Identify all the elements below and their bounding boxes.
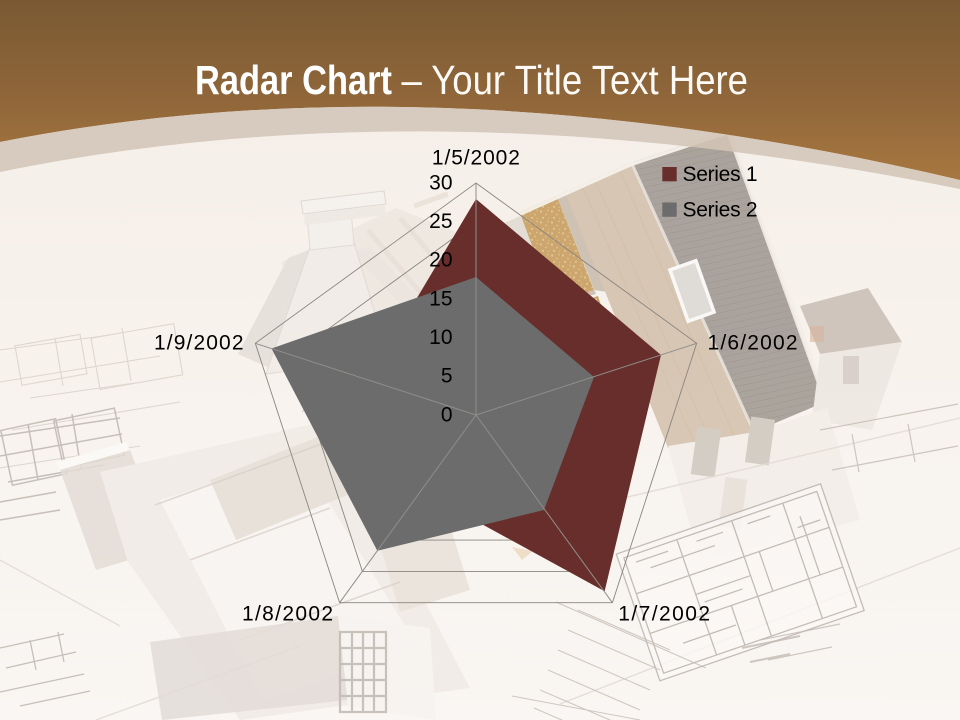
svg-text:1/6/2002: 1/6/2002 bbox=[708, 332, 798, 355]
svg-text:1/8/2002: 1/8/2002 bbox=[242, 603, 333, 626]
svg-text:Radar Chart– Your Title Text H: Radar Chart– Your Title Text Here bbox=[195, 57, 748, 103]
svg-text:25: 25 bbox=[429, 210, 452, 233]
svg-text:10: 10 bbox=[429, 326, 452, 349]
svg-text:5: 5 bbox=[441, 365, 453, 388]
svg-text:0: 0 bbox=[441, 403, 453, 426]
svg-text:Series 1: Series 1 bbox=[683, 163, 758, 186]
svg-text:30: 30 bbox=[429, 171, 452, 194]
svg-text:1/9/2002: 1/9/2002 bbox=[154, 332, 244, 355]
svg-text:1/5/2002: 1/5/2002 bbox=[432, 147, 520, 170]
svg-text:1/7/2002: 1/7/2002 bbox=[618, 603, 710, 626]
svg-text:15: 15 bbox=[429, 287, 452, 310]
svg-text:Series 2: Series 2 bbox=[683, 198, 758, 221]
svg-text:20: 20 bbox=[429, 249, 452, 272]
